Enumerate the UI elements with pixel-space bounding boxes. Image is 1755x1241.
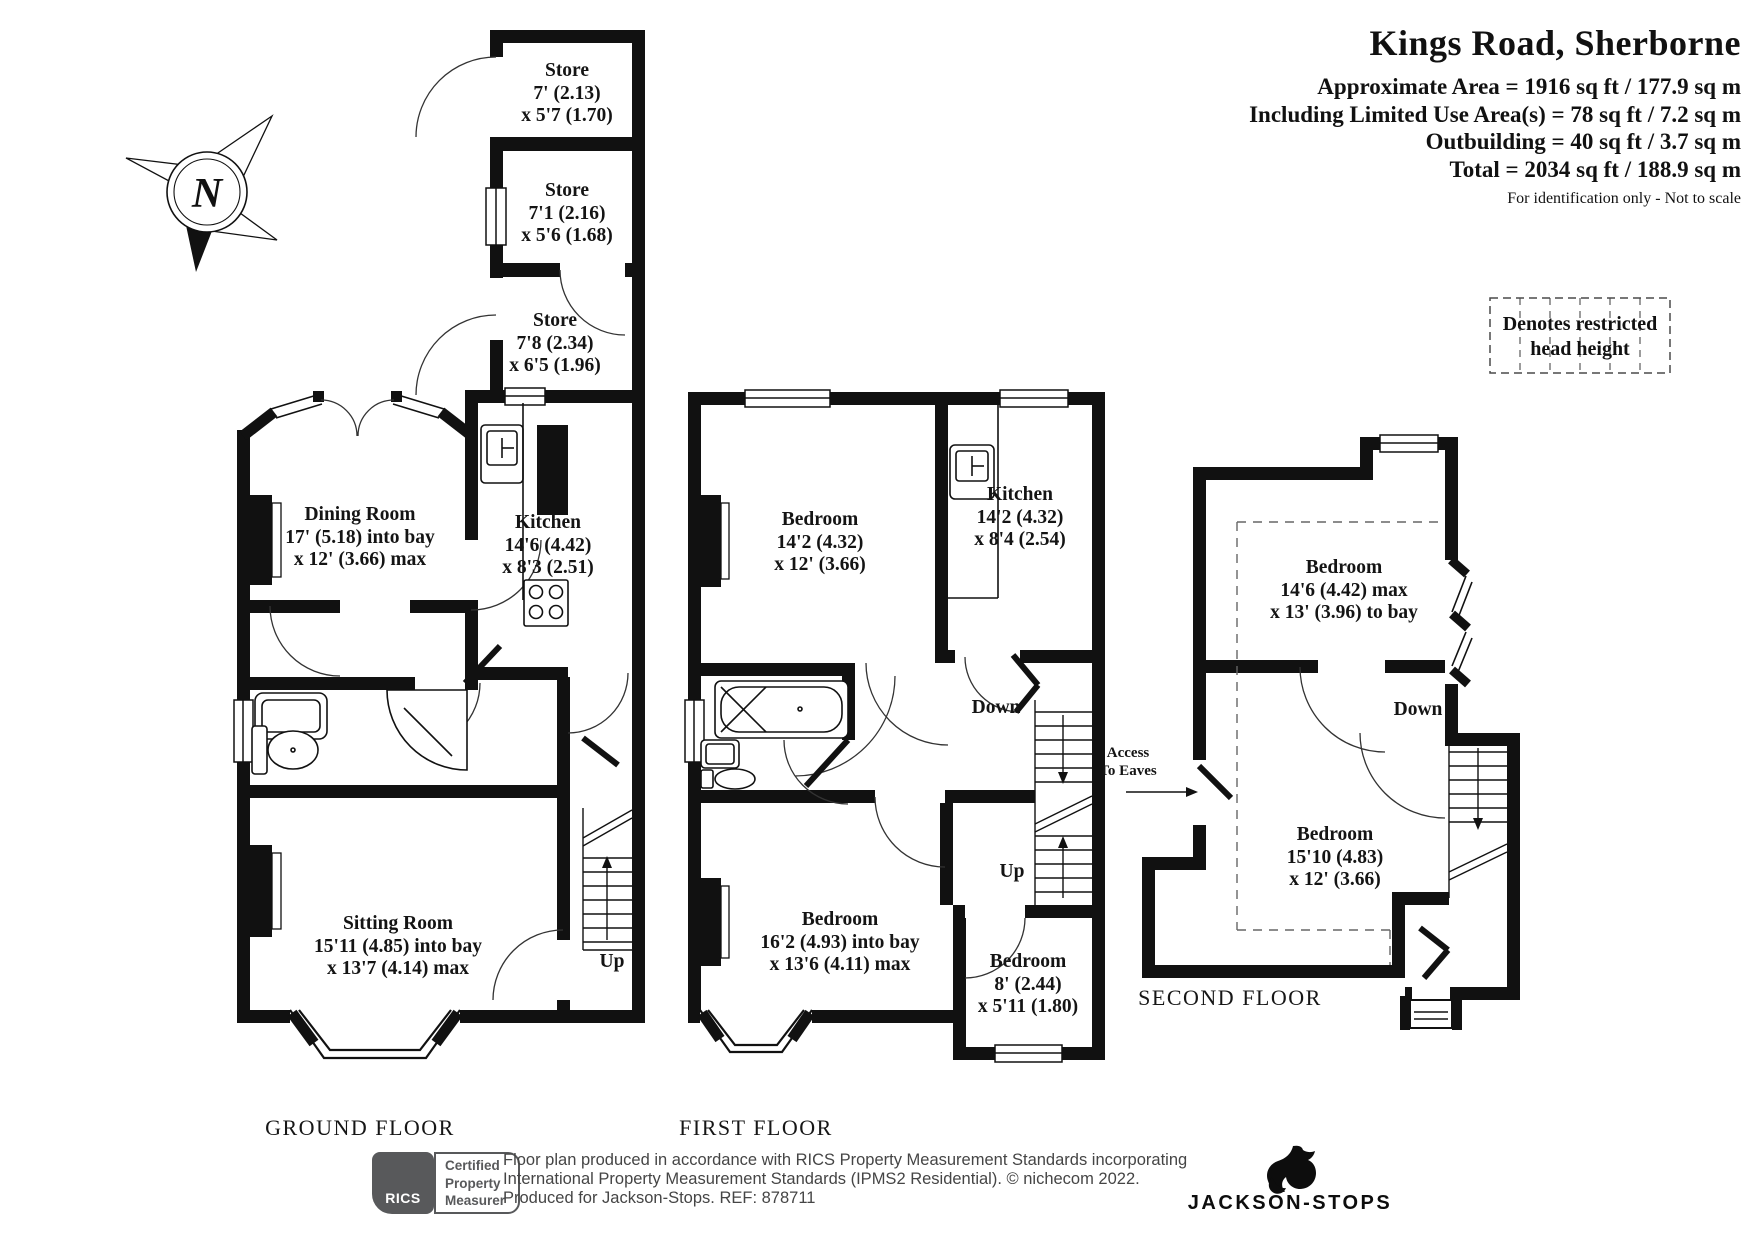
access-to-eaves-label: Access To Eaves: [1099, 744, 1156, 780]
access-to-eaves-arrow: [1126, 787, 1198, 797]
second-floor-plan: [1126, 435, 1520, 1030]
room-label-store3: Store 7'8 (2.34) x 6'5 (1.96): [509, 310, 601, 378]
room-label-store1: Store 7' (2.13) x 5'7 (1.70): [521, 60, 613, 128]
room-dim: x 5'7 (1.70): [521, 105, 613, 128]
stairs-down-label-second: Down: [1394, 699, 1443, 721]
ground-floor-title: GROUND FLOOR: [265, 1115, 455, 1141]
room-name: Store: [521, 180, 613, 203]
jackson-stops-wordmark: JACKSON-STOPS: [1188, 1192, 1392, 1215]
room-label-bedroom1-first: Bedroom 14'2 (4.32) x 12' (3.66): [774, 509, 866, 577]
room-dim: 7' (2.13): [521, 83, 613, 106]
room-dim: 15'10 (4.83): [1287, 847, 1383, 870]
room-label-bedroom1-second: Bedroom 14'6 (4.42) max x 13' (3.96) to …: [1270, 557, 1418, 625]
room-label-bedroom2-first: Bedroom 16'2 (4.93) into bay x 13'6 (4.1…: [760, 909, 919, 977]
room-name: Bedroom: [1270, 557, 1418, 580]
limited-use-area: Including Limited Use Area(s) = 78 sq ft…: [1249, 101, 1741, 129]
disclaimer-line3: Produced for Jackson-Stops. REF: 878711: [503, 1189, 1187, 1208]
stairs-down-label-first: Down: [972, 697, 1021, 719]
ground-floor-door-leaves: [465, 646, 618, 765]
room-name: Store: [509, 310, 601, 333]
identification-note: For identification only - Not to scale: [1249, 190, 1741, 208]
second-floor-title: SECOND FLOOR: [1138, 985, 1322, 1011]
stairs-up-label-ground: Up: [600, 951, 625, 973]
dining-bay-windows: [243, 395, 472, 436]
stairs-up-label-first: Up: [1000, 861, 1025, 883]
rics-badge-label: RICS: [372, 1190, 434, 1206]
room-label-store2: Store 7'1 (2.16) x 5'6 (1.68): [521, 180, 613, 248]
room-dim: 16'2 (4.93) into bay: [760, 932, 919, 955]
room-name: Dining Room: [285, 504, 435, 527]
first-floor-stairs: [1035, 700, 1092, 905]
room-dim: x 8'4 (2.54): [974, 529, 1066, 552]
room-dim: x 13'6 (4.11) max: [760, 954, 919, 977]
room-dim: 14'6 (4.42) max: [1270, 580, 1418, 603]
second-floor-door-arcs: [1300, 667, 1445, 818]
compass-north-letter: N: [191, 171, 224, 217]
second-floor-walls: [1142, 437, 1520, 1030]
room-label-bedroom3-first: Bedroom 8' (2.44) x 5'11 (1.80): [978, 951, 1078, 1019]
access-line1: Access: [1099, 744, 1156, 762]
room-name: Store: [521, 60, 613, 83]
restricted-head-height-legend: Denotes restricted head height: [1503, 312, 1658, 362]
room-label-sitting-room: Sitting Room 15'11 (4.85) into bay x 13'…: [314, 913, 482, 981]
second-floor-bay-windows: [1451, 560, 1472, 684]
first-floor-title: FIRST FLOOR: [679, 1115, 833, 1141]
room-name: Sitting Room: [314, 913, 482, 936]
floorplan-page: N: [0, 0, 1755, 1241]
room-dim: x 8'3 (2.51): [502, 557, 594, 580]
page-title: Kings Road, Sherborne: [1249, 22, 1741, 64]
room-label-dining-room: Dining Room 17' (5.18) into bay x 12' (3…: [285, 504, 435, 572]
fox-logo-icon: [1267, 1146, 1316, 1194]
second-floor-stairs: [1449, 746, 1507, 898]
room-dim: 17' (5.18) into bay: [285, 527, 435, 550]
room-dim: x 5'11 (1.80): [978, 996, 1078, 1019]
legend-line2: head height: [1503, 337, 1658, 362]
room-dim: 7'8 (2.34): [509, 333, 601, 356]
room-dim: x 5'6 (1.68): [521, 225, 613, 248]
room-name: Bedroom: [978, 951, 1078, 974]
room-name: Bedroom: [760, 909, 919, 932]
room-dim: 14'2 (4.32): [974, 507, 1066, 530]
room-dim: x 12' (3.66) max: [285, 549, 435, 572]
room-name: Bedroom: [1287, 824, 1383, 847]
room-label-kitchen-first: Kitchen 14'2 (4.32) x 8'4 (2.54): [974, 484, 1066, 552]
room-name: Kitchen: [974, 484, 1066, 507]
ground-floor-stairs: [583, 808, 632, 950]
header: Kings Road, Sherborne Approximate Area =…: [1249, 22, 1741, 208]
total-area: Total = 2034 sq ft / 188.9 sq m: [1249, 156, 1741, 184]
room-name: Kitchen: [502, 512, 594, 535]
room-dim: x 13'7 (4.14) max: [314, 958, 482, 981]
room-dim: x 12' (3.66): [774, 554, 866, 577]
outbuilding-area: Outbuilding = 40 sq ft / 3.7 sq m: [1249, 128, 1741, 156]
disclaimer-line1: Floor plan produced in accordance with R…: [503, 1151, 1187, 1170]
disclaimer-line2: International Property Measurement Stand…: [503, 1170, 1187, 1189]
room-dim: 14'2 (4.32): [774, 532, 866, 555]
room-dim: 7'1 (2.16): [521, 203, 613, 226]
room-dim: x 13' (3.96) to bay: [1270, 602, 1418, 625]
room-label-kitchen-ground: Kitchen 14'6 (4.42) x 8'3 (2.51): [502, 512, 594, 580]
second-floor-windows: [1380, 435, 1452, 1028]
room-dim: x 12' (3.66): [1287, 869, 1383, 892]
legend-line1: Denotes restricted: [1503, 312, 1658, 337]
approximate-area: Approximate Area = 1916 sq ft / 177.9 sq…: [1249, 73, 1741, 101]
first-floor-bay-window: [700, 1010, 812, 1052]
room-dim: 8' (2.44): [978, 974, 1078, 997]
room-dim: 15'11 (4.85) into bay: [314, 936, 482, 959]
access-line2: To Eaves: [1099, 762, 1156, 780]
sitting-room-bay-window: [290, 1010, 460, 1058]
room-name: Bedroom: [774, 509, 866, 532]
disclaimer: Floor plan produced in accordance with R…: [503, 1151, 1187, 1208]
room-dim: x 6'5 (1.96): [509, 355, 601, 378]
room-dim: 14'6 (4.42): [502, 535, 594, 558]
room-label-bedroom2-second: Bedroom 15'10 (4.83) x 12' (3.66): [1287, 824, 1383, 892]
compass-icon: N: [126, 116, 277, 272]
